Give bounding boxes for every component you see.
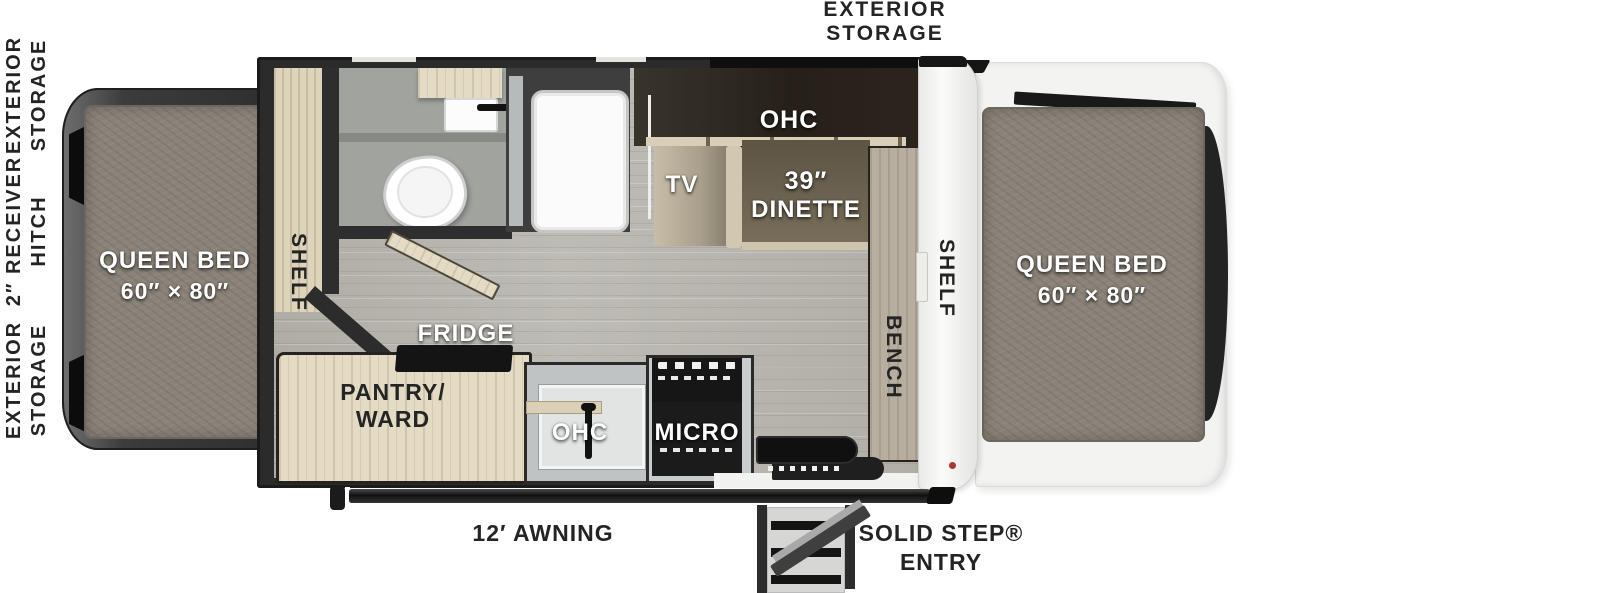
dinette-seat-left (726, 146, 742, 248)
awning-bracket-left (330, 486, 345, 510)
shelf-right-label: SHELF (932, 226, 960, 330)
left-bed-label: QUEEN BED 60″ × 80″ (72, 247, 278, 305)
bathroom-back-wall (339, 133, 507, 142)
griddle-dots (768, 466, 844, 471)
fridge-label: FRIDGE (396, 320, 536, 348)
solid-step-line: SOLID STEP® (841, 519, 1041, 548)
exterior-storage-rear-line2: STORAGE (27, 295, 52, 465)
bench-label: BENCH (880, 303, 906, 411)
vanity-cabinet (418, 68, 502, 98)
top-window-right (596, 57, 646, 62)
kitchen-faucet-head (581, 403, 596, 411)
end-cap-top-trim (919, 56, 967, 67)
awning-bar (349, 489, 933, 503)
solid-step-entry-label: SOLID STEP® ENTRY (841, 519, 1041, 577)
step-tread-3 (771, 575, 841, 584)
dinette-name-label: DINETTE (742, 196, 870, 224)
exterior-storage-top-line1: EXTERIOR (785, 0, 985, 22)
left-bed-size: 60″ × 80″ (72, 278, 278, 305)
micro-label: MICRO (646, 419, 748, 447)
tv-label: TV (650, 171, 714, 199)
right-bed-size: 60″ × 80″ (990, 282, 1194, 309)
receiver-hitch-label: 2″ RECEIVER HITCH (2, 146, 52, 316)
ohc-label: OHC (734, 106, 844, 135)
pantry-label-line2: WARD (291, 406, 495, 433)
exterior-storage-rear-label: EXTERIOR STORAGE (2, 295, 52, 465)
dinette-size-label: 39″ (742, 167, 870, 196)
pantry-label-line1: PANTRY/ (291, 379, 495, 406)
end-cap-bracket (916, 252, 928, 302)
floorplan-diagram: QUEEN BED 60″ × 80″ QUEEN BED 60″ × 80″ … (0, 0, 1600, 593)
fridge (395, 345, 513, 372)
left-bed-name: QUEEN BED (72, 247, 278, 275)
exterior-storage-top-label: EXTERIOR STORAGE (785, 0, 985, 46)
bathroom-left-wall (322, 68, 339, 294)
marker-light-dot (949, 462, 956, 469)
grate-dash-row (658, 376, 736, 380)
top-window-left (352, 57, 416, 62)
kitchen-ohc-label: OHC (534, 419, 626, 447)
entry-line: ENTRY (841, 548, 1041, 577)
pantry-label: PANTRY/ WARD (291, 379, 495, 433)
bathroom-bottom-wall (322, 226, 512, 239)
awning-bracket-right (926, 487, 956, 504)
burner-caps-row (658, 362, 736, 369)
step-rail-left (757, 505, 767, 593)
micro-dash-row (660, 448, 734, 452)
exterior-storage-rear-line1: EXTERIOR (2, 295, 27, 465)
right-bed-label: QUEEN BED 60″ × 80″ (990, 251, 1194, 309)
shower-pan (531, 90, 629, 233)
receiver-hitch-line2: HITCH (27, 146, 52, 316)
shower-glass-door (509, 76, 523, 226)
receiver-hitch-line1: 2″ RECEIVER (2, 146, 27, 316)
awning-label: 12′ AWNING (443, 520, 643, 547)
exterior-storage-top-line2: STORAGE (785, 22, 985, 46)
griddle-tray (756, 436, 858, 464)
shelf-left-label: SHELF (284, 222, 312, 322)
reading-light (648, 95, 651, 219)
right-bed-name: QUEEN BED (990, 251, 1194, 279)
